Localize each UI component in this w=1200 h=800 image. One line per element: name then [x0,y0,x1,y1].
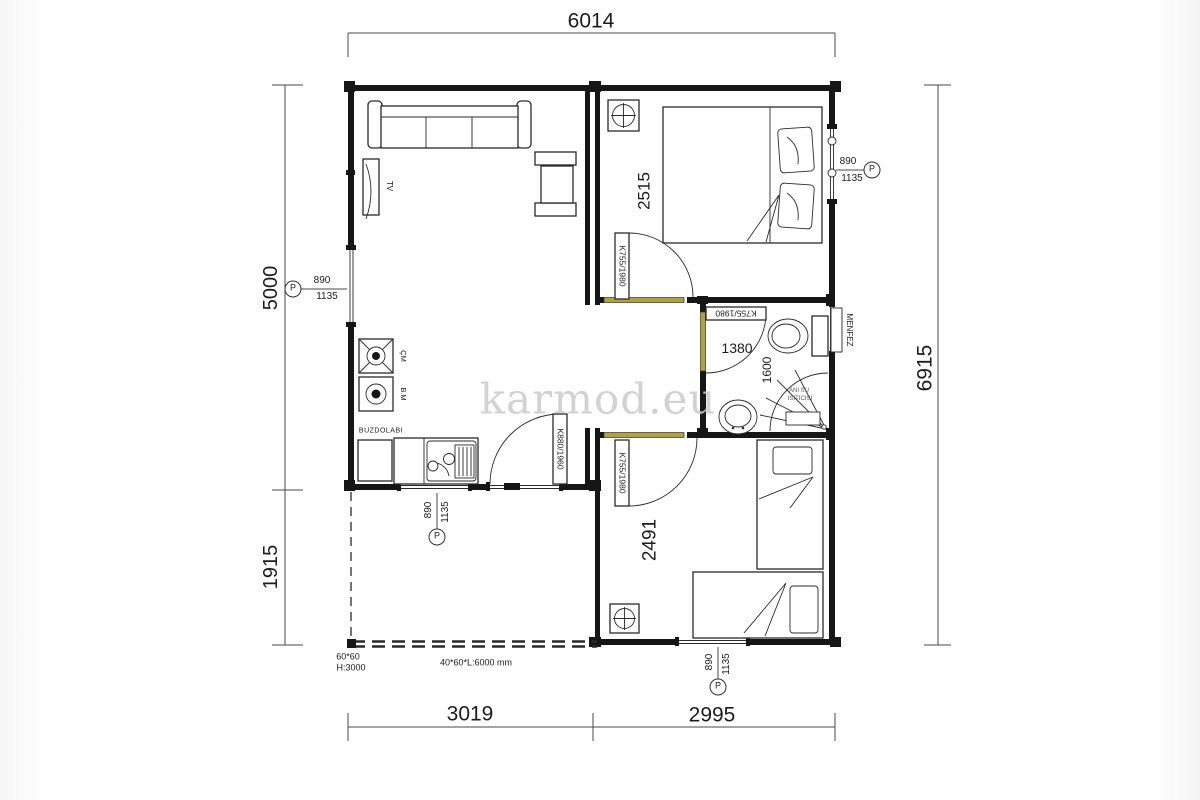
dim-left-lower: 1915 [261,545,281,590]
heater-label-line1: ANI SU [789,388,809,394]
bath-width-dim: 1380 [721,341,752,355]
doors [490,233,766,506]
heater-label-line2: ISITICISI [788,396,812,402]
door-label-bath: K755/1980 [715,309,756,318]
armchair [535,152,576,216]
kitchen-counter-sink [394,438,478,484]
tv-unit [363,159,379,219]
tv-label: TV [385,181,393,191]
post-height-note: H:3000 [336,664,365,673]
window-tag-num: 890 [314,276,331,286]
dim-bottom-left: 3019 [447,704,494,725]
beam-note: 40*60*L:6000 mm [440,659,512,668]
vent-label: MENFEZ [845,314,853,347]
toilet [768,316,828,356]
ceiling-fan-bedroom2 [610,604,639,633]
washbasin [719,400,757,434]
vent-box [831,308,842,352]
post-size-note: 60*60 [336,653,360,662]
fridge-label: BUZDOLABI [359,428,403,435]
window-tag-den: 1135 [722,653,732,675]
terrace-outline [347,492,597,648]
window-symbol: P [285,281,302,298]
window-tag-num: 890 [705,654,715,671]
dim-left-upper: 5000 [261,266,281,311]
sofa [368,101,531,148]
door-label-bedroom2: K755/1980 [618,452,627,493]
bath-depth-dim: 1600 [761,357,773,384]
washer-label: ÇM [399,350,407,362]
floor-plan: karmod.eu 6014 6915 5000 1915 3019 2995 … [0,0,1200,800]
window-tag-num: 890 [424,502,434,519]
door-label-bedroom1: K755/1980 [618,245,627,286]
window-tag-den: 1135 [441,501,451,523]
single-bed-horizontal [693,572,823,638]
dim-top: 6014 [568,11,615,32]
bedroom1-dim: 2515 [636,172,653,210]
door-label-entrance: K880/1960 [556,428,565,469]
dishwasher [359,377,393,411]
double-bed [663,107,822,243]
window-symbol: P [710,679,727,696]
washing-machine [359,339,393,373]
window-symbol: P [429,529,446,546]
single-bed-vertical [757,440,823,569]
door-bedroom2 [615,438,697,506]
dim-right: 6915 [915,345,936,392]
ceiling-fan-bedroom1 [608,100,639,131]
window-tag-num: 890 [840,157,857,167]
fridge [358,440,392,481]
window-tag-den: 1135 [316,292,338,302]
dim-bottom-right: 2995 [689,705,736,726]
bedroom2-dim: 2491 [641,519,660,561]
watermark: karmod.eu [480,375,717,424]
window-tag-den: 1135 [841,174,863,184]
dishwasher-label: B.M [399,387,407,400]
window-symbol: P [864,162,881,179]
